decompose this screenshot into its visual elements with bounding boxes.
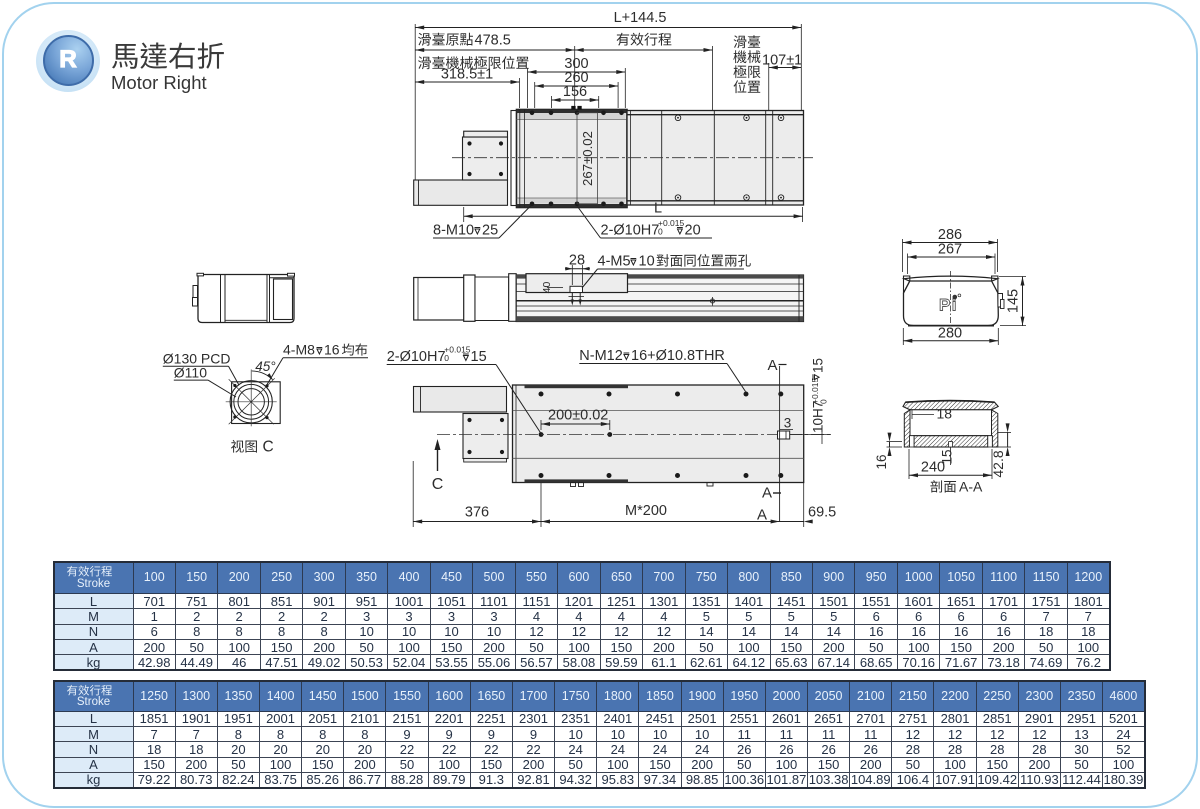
svg-text:42.8: 42.8 bbox=[990, 450, 1006, 477]
svg-text:0: 0 bbox=[819, 399, 829, 404]
svg-text:376: 376 bbox=[465, 505, 489, 521]
svg-text:18: 18 bbox=[937, 406, 953, 422]
svg-text:478.5: 478.5 bbox=[475, 33, 511, 49]
svg-text:318.5±1: 318.5±1 bbox=[441, 67, 493, 83]
svg-text:25: 25 bbox=[482, 223, 498, 239]
svg-text:45°: 45° bbox=[255, 359, 276, 374]
svg-text:A-A: A-A bbox=[959, 479, 983, 495]
svg-text:267: 267 bbox=[938, 242, 962, 258]
svg-text:M*200: M*200 bbox=[625, 503, 667, 519]
svg-text:8-M10: 8-M10 bbox=[433, 223, 474, 239]
svg-text:20: 20 bbox=[685, 223, 701, 239]
svg-text:16+Ø10.8THR: 16+Ø10.8THR bbox=[631, 348, 725, 364]
svg-text:107±1: 107±1 bbox=[762, 53, 802, 69]
svg-text:C: C bbox=[432, 476, 444, 493]
svg-text:L: L bbox=[654, 201, 662, 217]
svg-text:15: 15 bbox=[940, 449, 955, 464]
svg-text:A: A bbox=[762, 485, 772, 502]
svg-text:A: A bbox=[757, 507, 767, 524]
svg-text:2-Ø10H7: 2-Ø10H7 bbox=[601, 223, 660, 239]
svg-text:10H7: 10H7 bbox=[811, 401, 826, 433]
svg-text:4-M5: 4-M5 bbox=[598, 254, 631, 270]
svg-text:280: 280 bbox=[938, 326, 962, 342]
svg-text:10: 10 bbox=[639, 254, 655, 270]
svg-text:Ø110: Ø110 bbox=[174, 365, 207, 381]
svg-text:0: 0 bbox=[658, 227, 663, 237]
svg-text:C: C bbox=[263, 439, 274, 456]
svg-text:L+144.5: L+144.5 bbox=[614, 10, 667, 26]
svg-text:P: P bbox=[939, 296, 950, 315]
svg-text:267±0.02: 267±0.02 bbox=[580, 131, 595, 186]
svg-text:2-Ø10H7: 2-Ø10H7 bbox=[387, 349, 446, 365]
svg-text:4-M8: 4-M8 bbox=[283, 342, 315, 358]
svg-text:200±0.02: 200±0.02 bbox=[548, 408, 608, 424]
svg-text:0: 0 bbox=[444, 353, 449, 363]
svg-text:15: 15 bbox=[811, 358, 826, 373]
svg-text:16: 16 bbox=[874, 454, 889, 469]
svg-text:69.5: 69.5 bbox=[808, 505, 836, 521]
svg-text:N-M12: N-M12 bbox=[579, 348, 623, 364]
svg-text:156: 156 bbox=[563, 84, 587, 100]
svg-text:16: 16 bbox=[324, 342, 340, 358]
svg-text:15: 15 bbox=[471, 349, 487, 365]
svg-text:28: 28 bbox=[569, 253, 585, 269]
svg-text:A: A bbox=[768, 357, 778, 374]
svg-text:145: 145 bbox=[1006, 289, 1022, 313]
svg-text:3: 3 bbox=[784, 416, 792, 431]
